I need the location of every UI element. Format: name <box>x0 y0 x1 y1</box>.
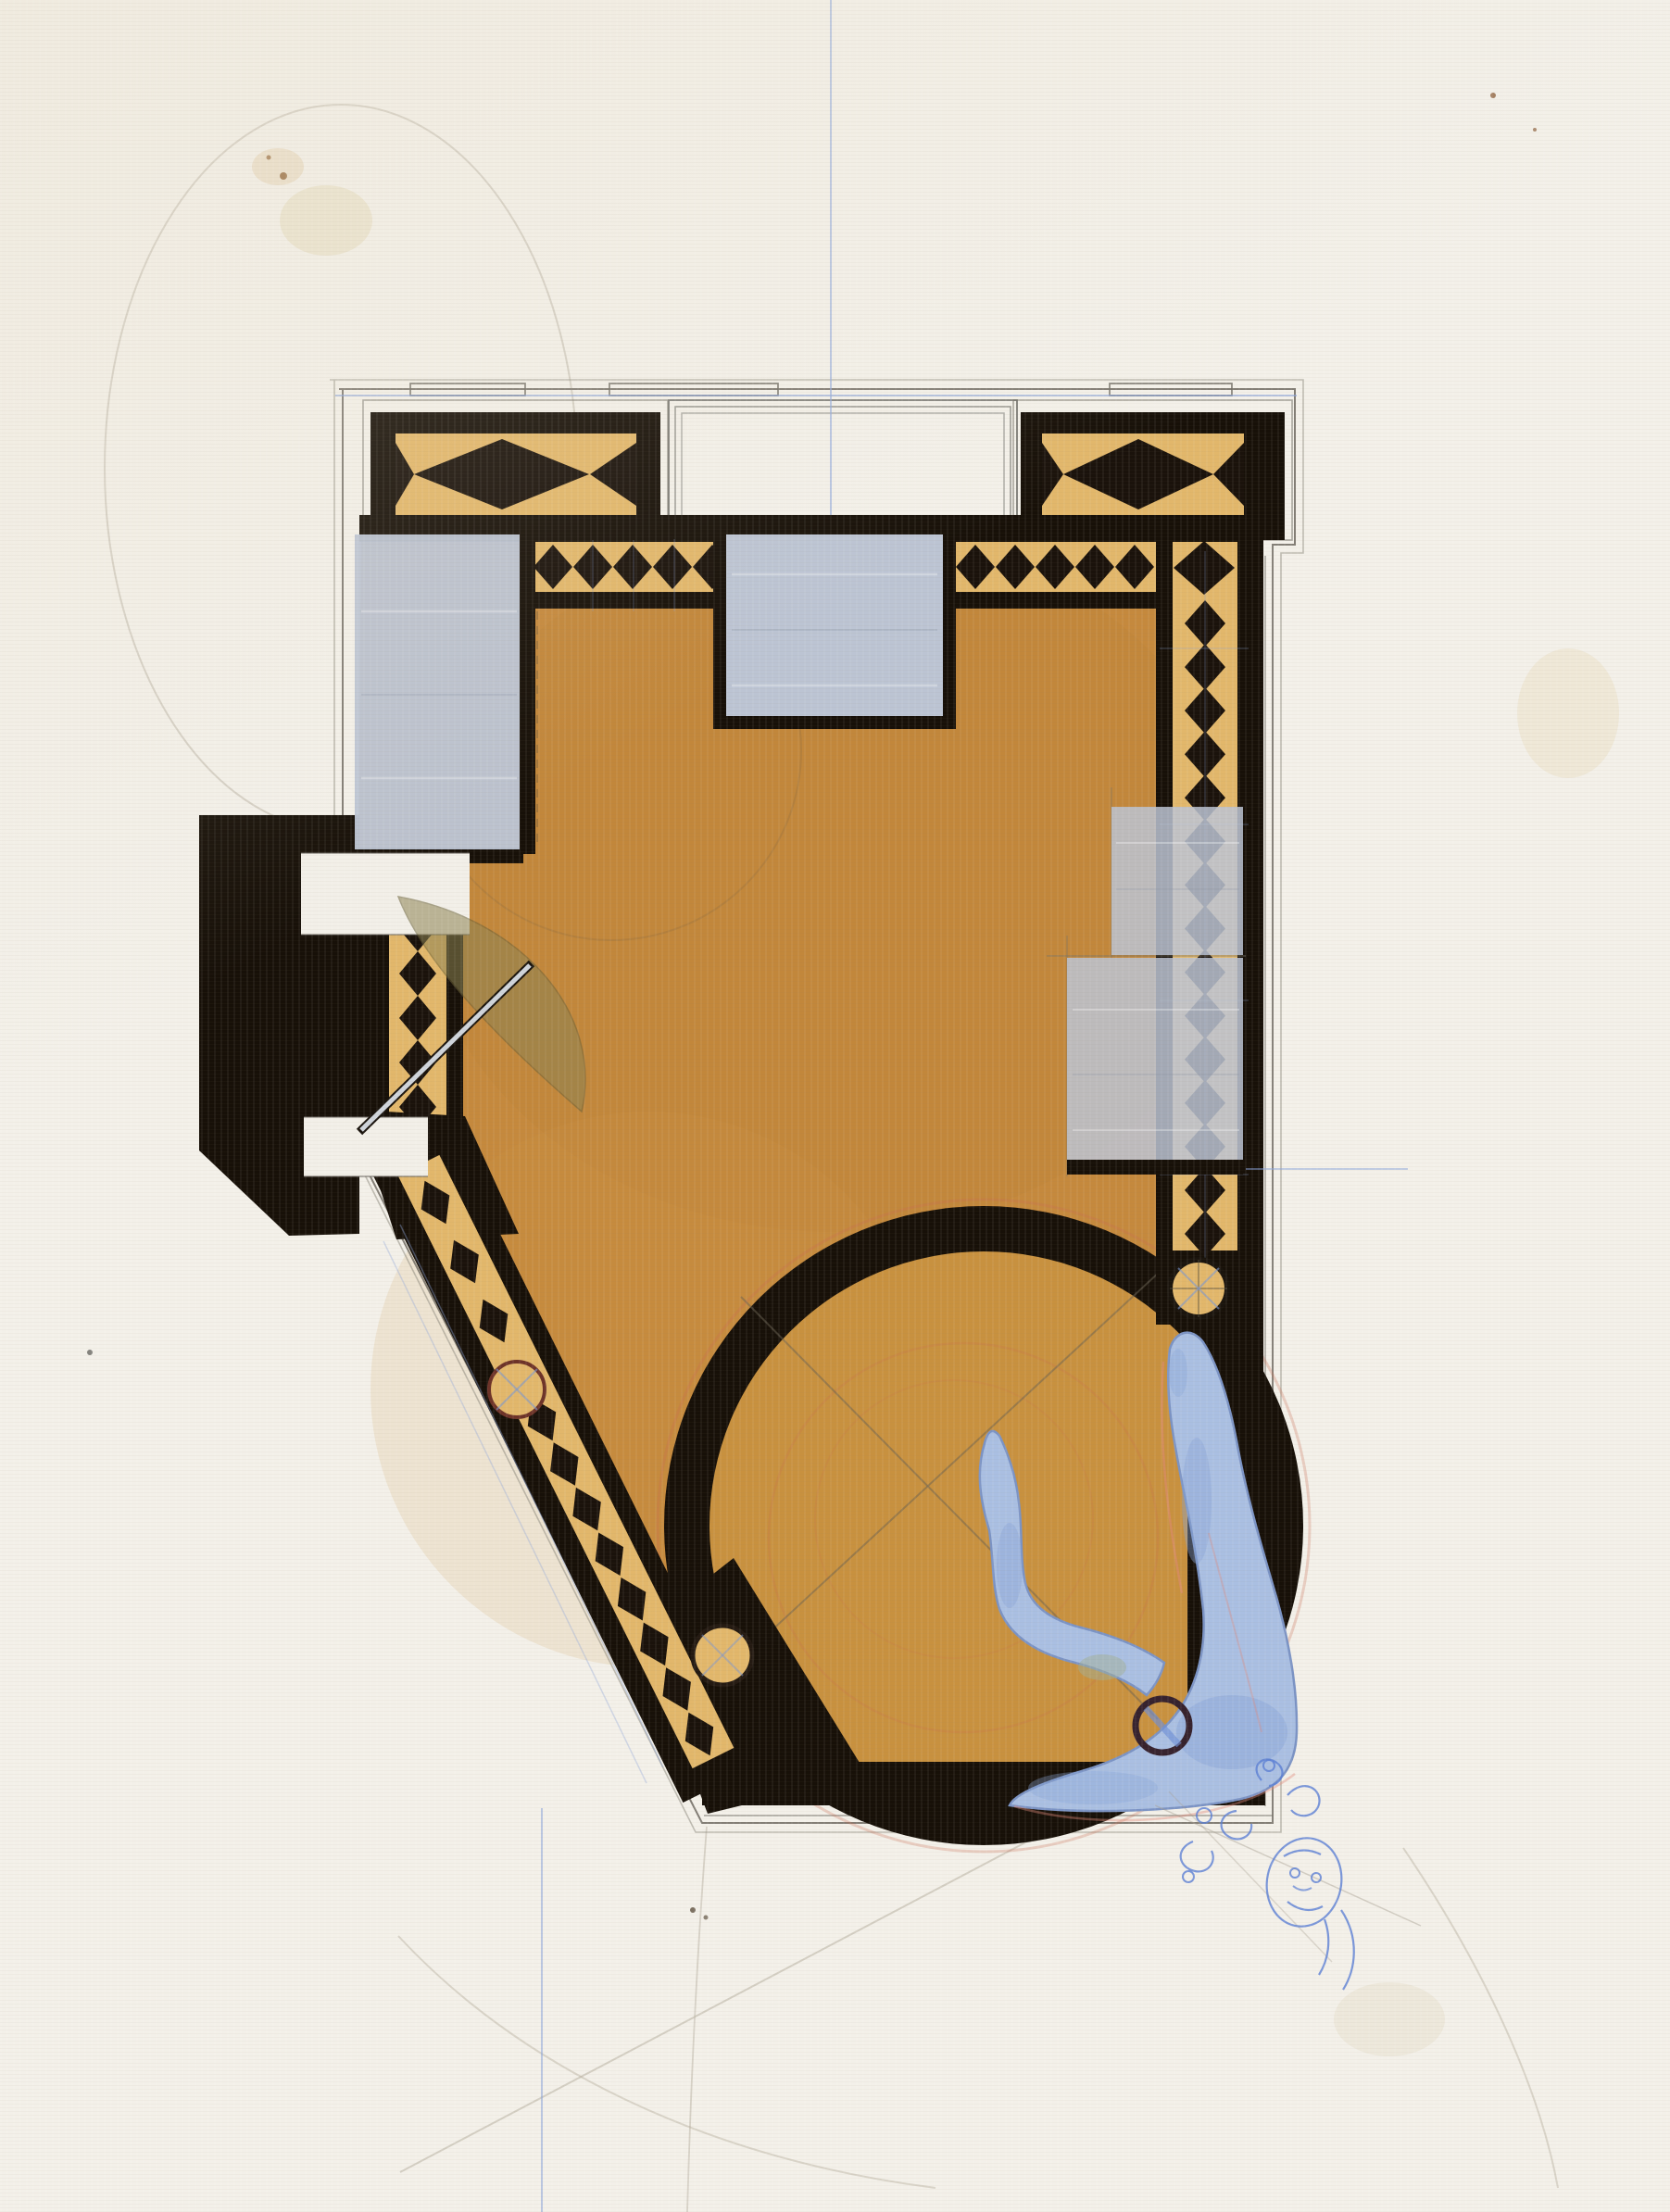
speck-7 <box>704 1916 709 1920</box>
doodle-pencil-line-1 <box>1155 1805 1421 1926</box>
doodle-brow <box>1284 1850 1321 1856</box>
pencil-arc-bottom-left <box>398 1936 935 2188</box>
doodle-eye-left <box>1290 1868 1300 1878</box>
silver-left-border <box>520 534 535 854</box>
doodle-head-oval <box>1259 1831 1350 1934</box>
speck-1 <box>280 172 287 180</box>
speck-6 <box>690 1907 696 1913</box>
figure-shade-5 <box>1169 1349 1187 1397</box>
doodle-mouth <box>1287 1902 1323 1910</box>
pencil-diagonal-bottom <box>400 1832 1045 2172</box>
paper-sheet <box>0 0 1670 2212</box>
doodle-neck-1 <box>1319 1919 1328 1975</box>
silver-square-center <box>726 534 943 716</box>
doodle-neck-2 <box>1341 1910 1354 1990</box>
silver-right-lower-border <box>1067 1160 1243 1175</box>
figure-shade-3 <box>1028 1771 1158 1804</box>
stain-bottom-right <box>1334 1982 1445 2056</box>
silver-rect-left <box>355 534 521 849</box>
figure-shade-1 <box>1182 1438 1212 1564</box>
silver-rect-right-upper <box>1111 807 1243 955</box>
speck-3 <box>1490 93 1496 98</box>
doodle-curl-b <box>1287 1786 1320 1816</box>
figure-shade-2 <box>1176 1695 1287 1769</box>
stain-right <box>1517 648 1619 778</box>
band-top-strip-a <box>521 590 736 609</box>
speck-5 <box>87 1350 93 1355</box>
niche-wall-line-3 <box>682 413 1004 515</box>
doodle-circle-left-2 <box>1183 1871 1194 1882</box>
figure-shade-4 <box>997 1523 1023 1608</box>
speck-2 <box>267 156 271 160</box>
niche-wall-line-1 <box>669 400 1017 515</box>
band-top-strip-b <box>945 590 1173 609</box>
doodle-curl-left <box>1181 1841 1213 1871</box>
speck-4 <box>1533 128 1537 132</box>
silver-rect-right-lower <box>1067 958 1243 1163</box>
stain-top-left-2 <box>252 148 304 185</box>
figure-green-tint <box>1078 1654 1126 1680</box>
stain-top-left <box>280 185 372 256</box>
doodle-scribble-face <box>1293 1886 1312 1891</box>
niche-wall-line-2 <box>675 407 1011 515</box>
floor-plan-drawing <box>0 0 1670 2212</box>
